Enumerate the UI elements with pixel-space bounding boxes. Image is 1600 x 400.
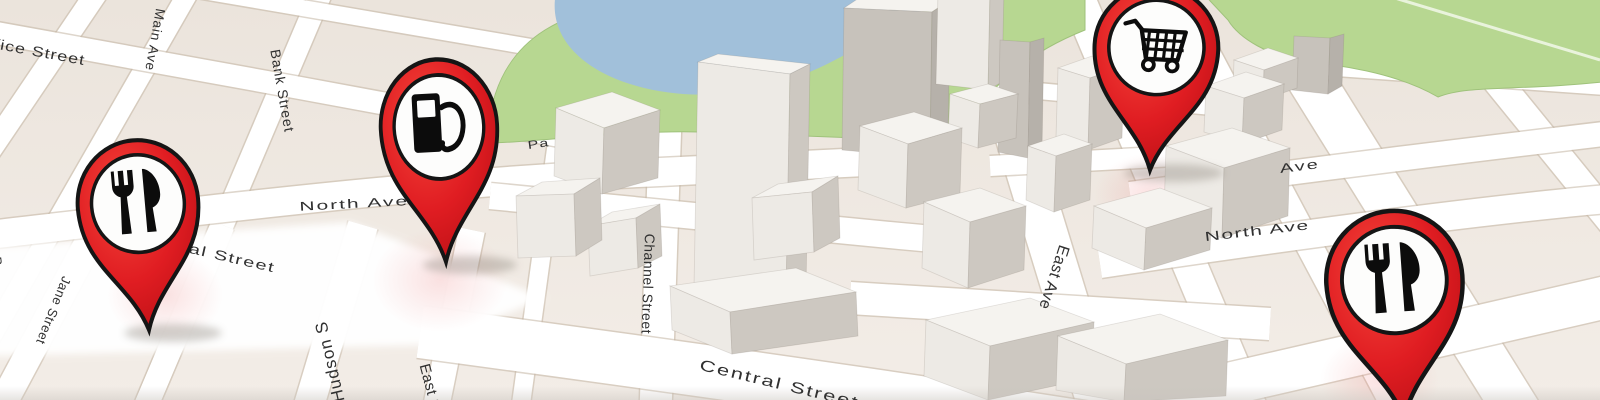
restaurant-pin-east[interactable] bbox=[1322, 206, 1472, 400]
map-canvas: fice StreetMain AveBank StreetNorth AveP… bbox=[0, 0, 1600, 400]
pin-shadow bbox=[1124, 164, 1224, 182]
pin-shadow bbox=[423, 256, 517, 274]
shopping-pin[interactable] bbox=[1088, 0, 1221, 173]
map-pin-layer bbox=[0, 0, 1600, 400]
gas-station-pin[interactable] bbox=[377, 56, 504, 265]
restaurant-pin-west[interactable] bbox=[72, 135, 209, 335]
pin-shadow bbox=[124, 324, 221, 342]
